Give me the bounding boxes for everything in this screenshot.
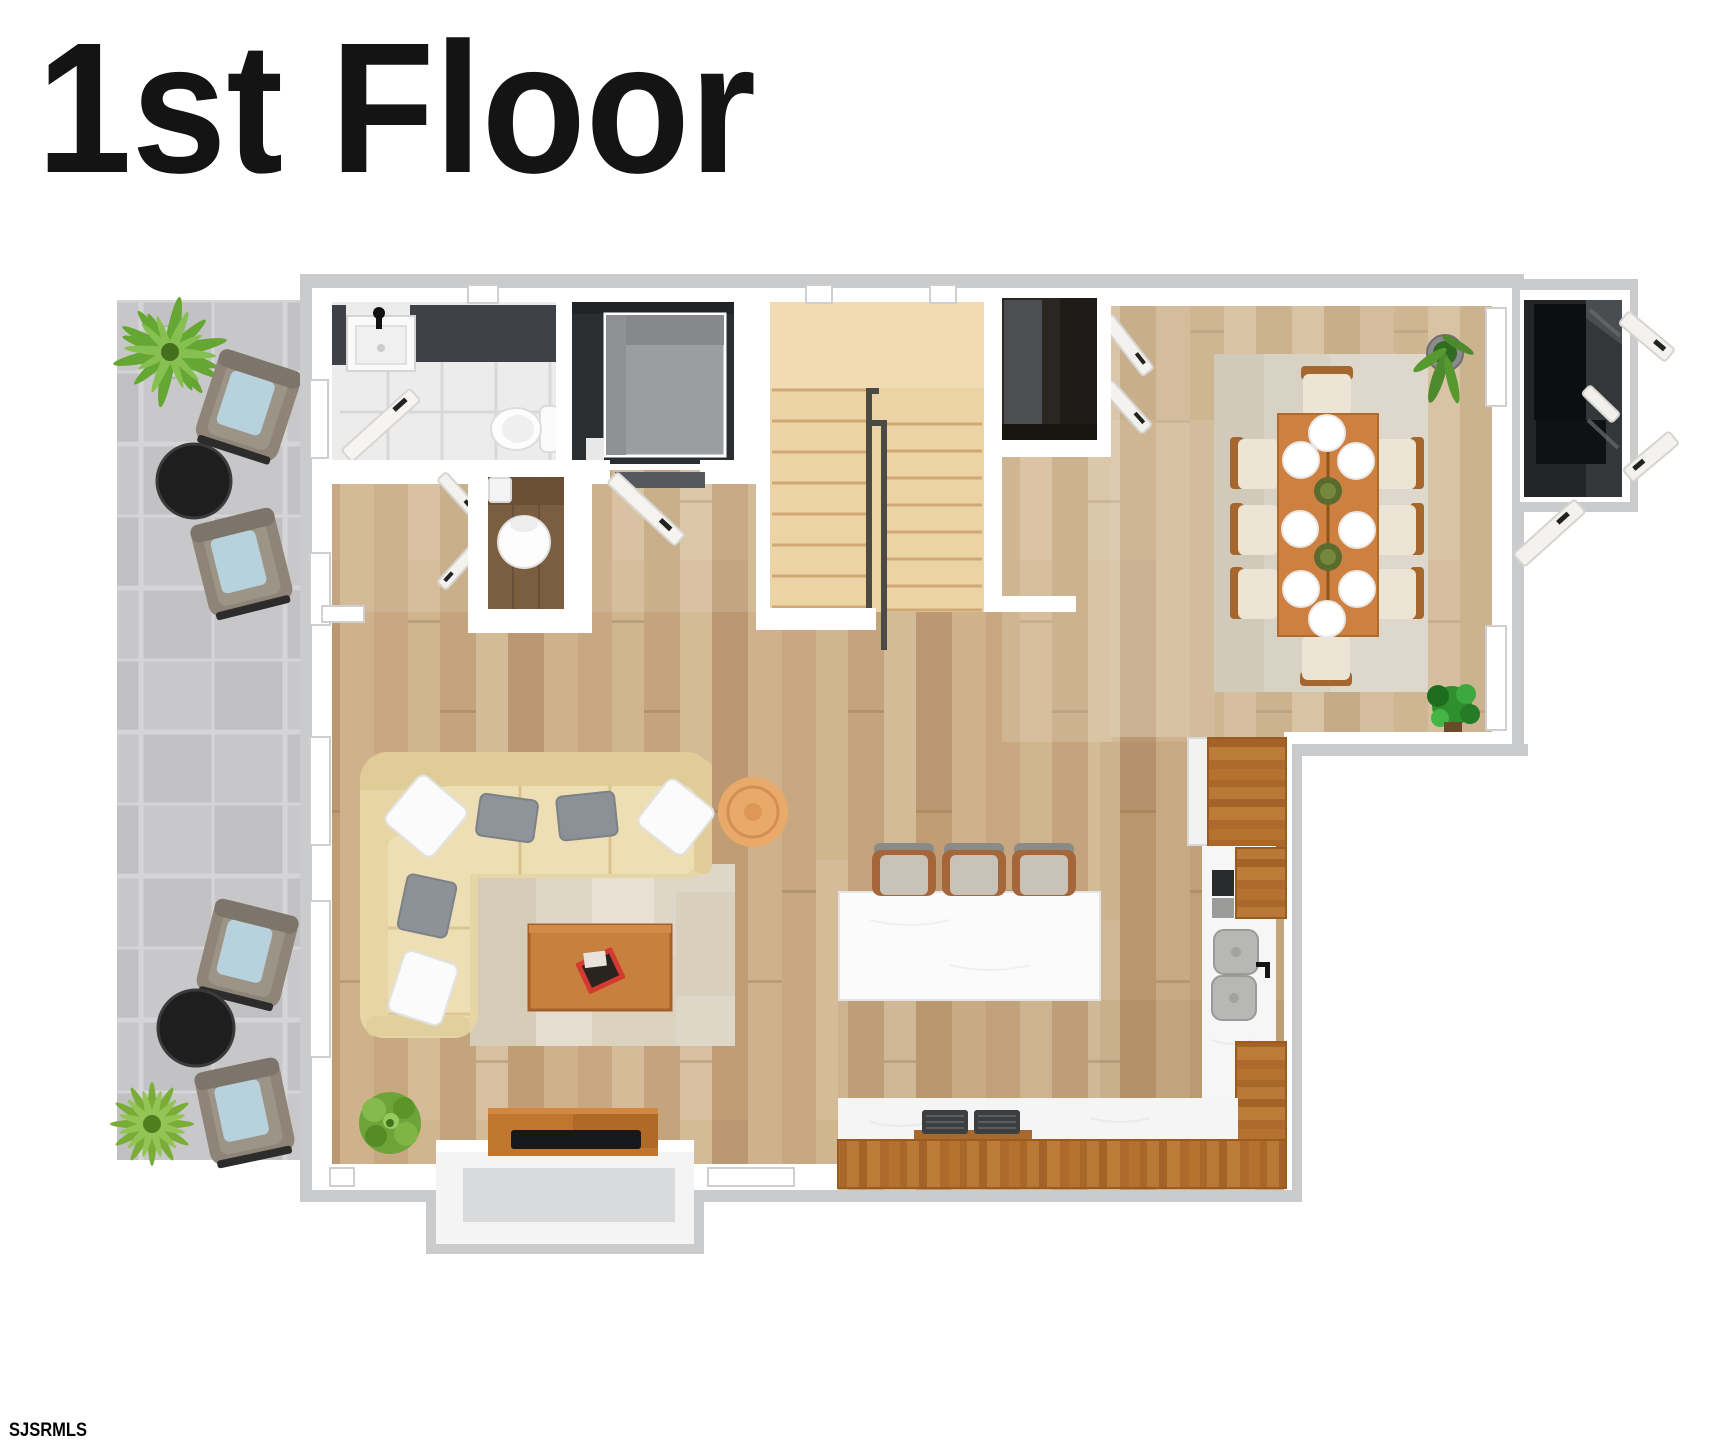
svg-text:1st Floor: 1st Floor — [37, 5, 756, 212]
svg-text:SJSRMLS: SJSRMLS — [9, 1420, 87, 1440]
